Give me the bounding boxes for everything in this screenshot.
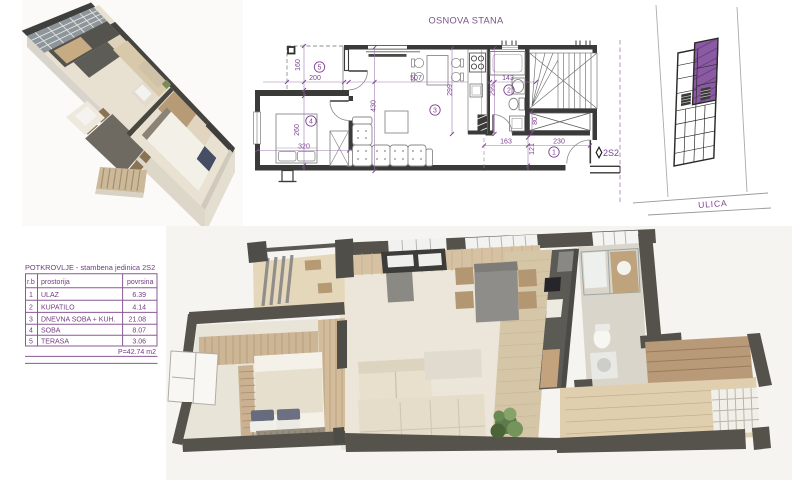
svg-text:TERASA: TERASA xyxy=(41,338,69,345)
svg-text:299: 299 xyxy=(447,84,454,96)
svg-text:320: 320 xyxy=(298,144,310,151)
svg-text:5: 5 xyxy=(318,65,322,72)
svg-text:P=42.74 m2: P=42.74 m2 xyxy=(118,349,156,356)
svg-text:163: 163 xyxy=(500,139,512,146)
svg-text:4: 4 xyxy=(309,119,313,126)
svg-text:2S2: 2S2 xyxy=(603,148,619,158)
svg-text:200: 200 xyxy=(309,75,321,82)
svg-text:KUPATILO: KUPATILO xyxy=(41,305,75,312)
svg-text:OSNOVA STANA: OSNOVA STANA xyxy=(428,16,504,26)
svg-text:POTKROVLJE - stambena jedinica: POTKROVLJE - stambena jedinica 2S2 xyxy=(25,263,155,272)
svg-text:ULAZ: ULAZ xyxy=(41,292,60,299)
svg-text:299: 299 xyxy=(490,84,497,96)
svg-text:507: 507 xyxy=(410,75,422,82)
svg-text:3: 3 xyxy=(29,317,33,324)
svg-text:6.39: 6.39 xyxy=(132,292,146,299)
svg-text:430: 430 xyxy=(371,100,378,112)
svg-text:4: 4 xyxy=(29,328,33,335)
svg-text:160: 160 xyxy=(295,59,302,71)
svg-text:2: 2 xyxy=(507,88,511,95)
svg-text:8.07: 8.07 xyxy=(132,328,146,335)
svg-text:3: 3 xyxy=(433,108,437,115)
svg-text:1: 1 xyxy=(29,292,33,299)
svg-text:5: 5 xyxy=(29,338,33,345)
svg-text:80: 80 xyxy=(532,117,539,125)
svg-text:121: 121 xyxy=(529,143,536,155)
svg-text:SOBA: SOBA xyxy=(41,328,61,335)
svg-text:230: 230 xyxy=(553,139,565,146)
svg-text:143: 143 xyxy=(502,75,514,82)
svg-text:21.08: 21.08 xyxy=(128,317,146,324)
svg-text:ULICA: ULICA xyxy=(698,198,728,210)
svg-text:DNEVNA SOBA + KUH.: DNEVNA SOBA + KUH. xyxy=(41,317,116,324)
svg-text:3.06: 3.06 xyxy=(132,338,146,345)
svg-text:1: 1 xyxy=(552,150,556,157)
svg-text:2: 2 xyxy=(29,305,33,312)
svg-text:prostorija: prostorija xyxy=(41,279,70,286)
svg-text:260: 260 xyxy=(294,124,301,136)
svg-text:povrsina: povrsina xyxy=(127,279,154,286)
svg-text:4.14: 4.14 xyxy=(132,305,146,312)
svg-text:r.b: r.b xyxy=(27,279,35,286)
